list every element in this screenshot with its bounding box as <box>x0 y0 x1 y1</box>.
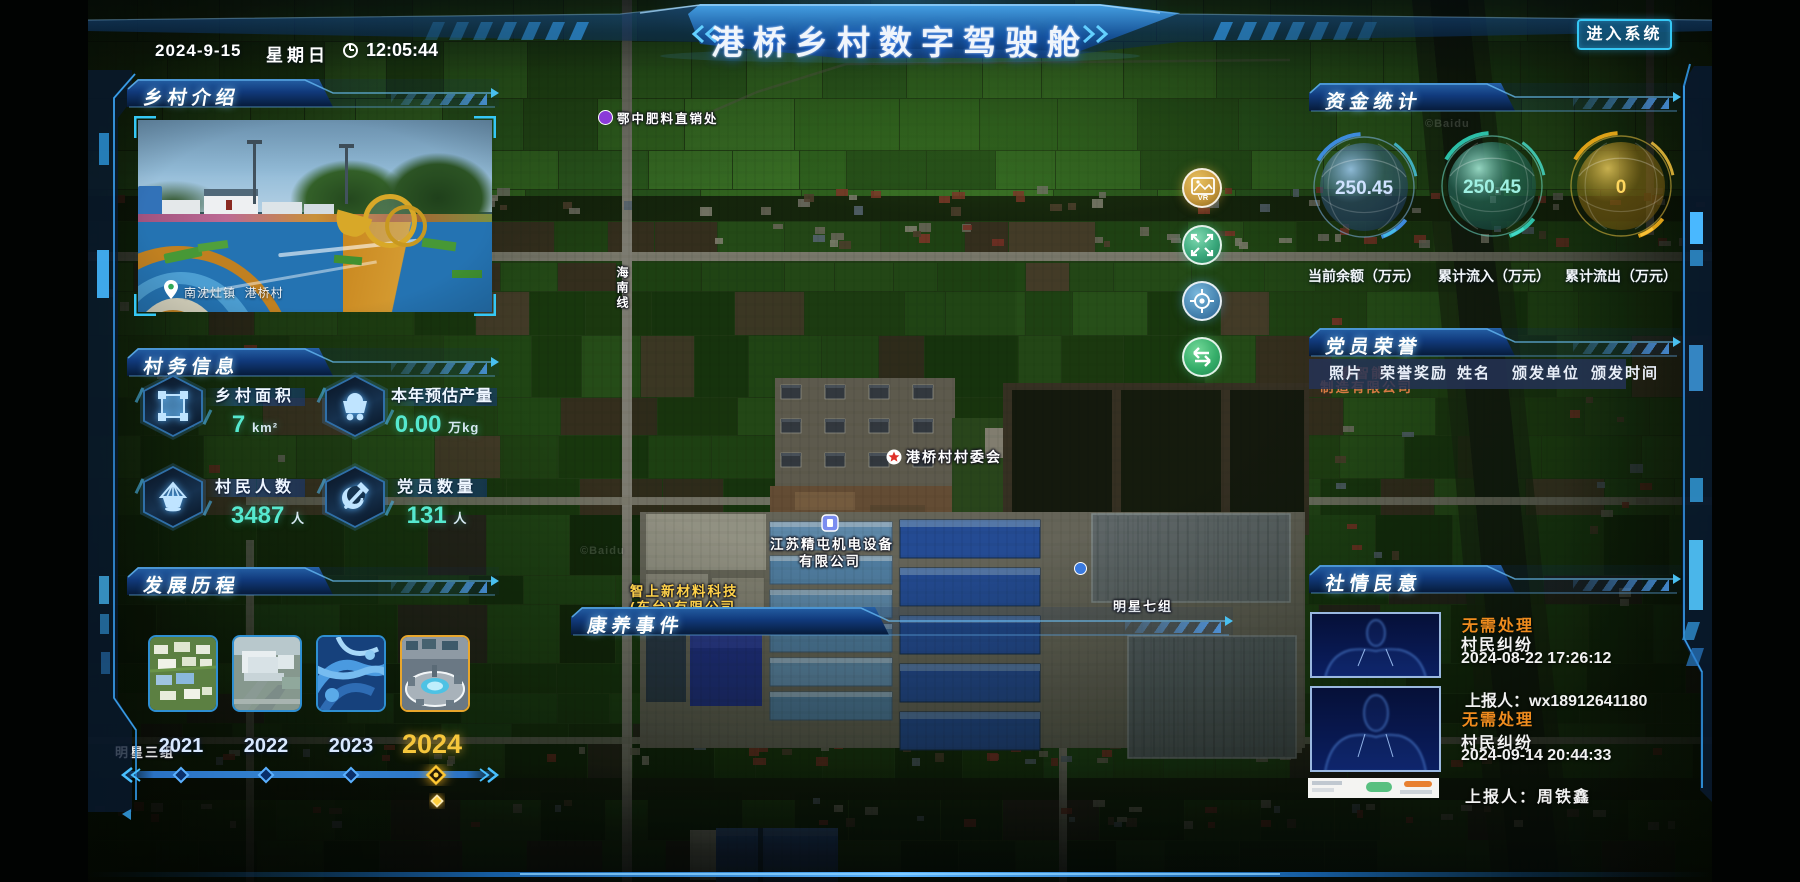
svg-text:250.45: 250.45 <box>1463 177 1522 198</box>
svg-text:0: 0 <box>1616 177 1627 198</box>
svg-text:250.45: 250.45 <box>1335 178 1394 199</box>
svg-text:VR: VR <box>1198 193 1209 202</box>
